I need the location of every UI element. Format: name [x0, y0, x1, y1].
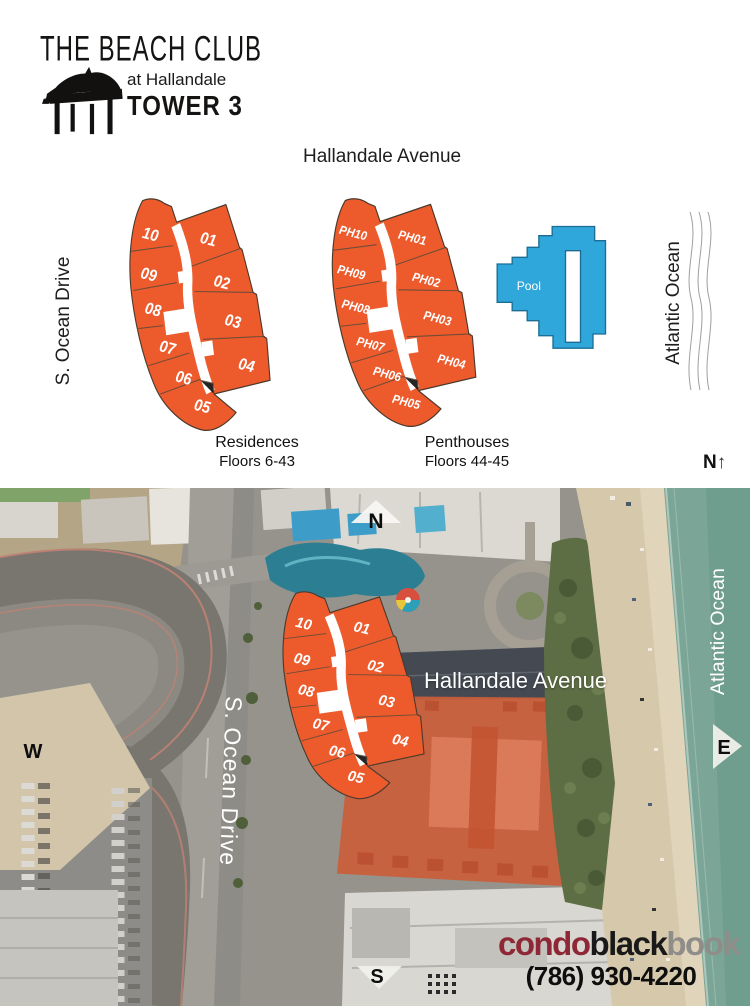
street-label-left: S. Ocean Drive	[53, 251, 75, 391]
logo-subtitle: at Hallandale	[127, 70, 226, 90]
street-label-top: Hallandale Avenue	[303, 146, 461, 168]
residences-caption: Residences Floors 6-43	[187, 433, 327, 471]
brand-logo: condoblackbook	[498, 927, 724, 960]
shoreline-waves	[686, 210, 726, 392]
residences-floors: Floors 6-43	[187, 453, 327, 471]
penthouses-floorplate: PH10 PH09 PH08 PH07 PH06 PH05 PH01 PH02 …	[314, 189, 488, 429]
pool-label: Pool	[517, 279, 541, 293]
brand-phone: (786) 930-4220	[498, 963, 724, 989]
penthouses-title: Penthouses	[397, 433, 537, 453]
compass-east: E	[717, 737, 730, 759]
tiki-hut-icon	[42, 60, 126, 136]
penthouses-caption: Penthouses Floors 44-45	[397, 433, 537, 471]
compass-north: N	[368, 510, 383, 533]
compass-south: S	[370, 966, 383, 988]
street-label-map: Hallandale Avenue	[424, 668, 607, 693]
compass-west: W	[24, 741, 43, 763]
pool-shape: Pool	[488, 209, 623, 359]
brand-black: black	[589, 925, 666, 962]
north-indicator: N↑	[703, 452, 726, 474]
residences-floorplate: 10 09 08 07 06 05 01 02 03 04	[112, 189, 282, 433]
brand-condo: condo	[498, 925, 589, 962]
logo-tower: TOWER 3	[127, 91, 243, 123]
map-floorplate-overlay: 10 09 08 07 06 05 01 02 03 04	[265, 583, 436, 801]
ocean-label-plan: Atlantic Ocean	[663, 235, 685, 371]
residences-title: Residences	[187, 433, 327, 453]
brand-block: condoblackbook (786) 930-4220	[498, 927, 724, 989]
north-arrow-icon: ↑	[717, 452, 727, 473]
penthouses-floors: Floors 44-45	[397, 453, 537, 471]
flyer-page: THE BEACH CLUB at Hallandale TOWER 3 Hal…	[0, 0, 750, 1006]
brand-book: book	[666, 925, 739, 962]
ocean-label-map: Atlantic Ocean	[707, 568, 729, 695]
